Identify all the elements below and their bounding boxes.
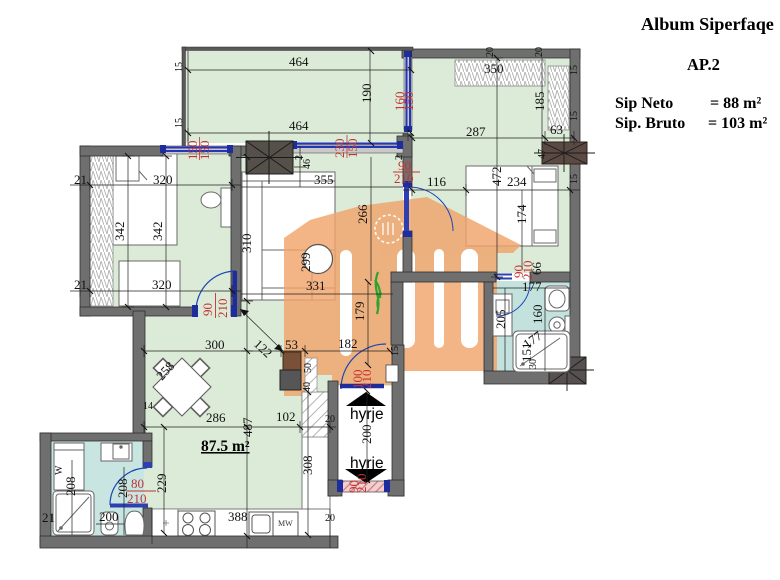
svg-text:210: 210 (359, 370, 374, 390)
svg-text:21: 21 (74, 277, 87, 292)
svg-text:200: 200 (99, 509, 119, 524)
svg-text:53: 53 (285, 337, 298, 352)
svg-text:47: 47 (537, 149, 548, 159)
svg-text:208: 208 (63, 477, 78, 497)
svg-text:15: 15 (569, 65, 580, 75)
svg-text:21: 21 (42, 510, 55, 525)
svg-text:50: 50 (303, 363, 314, 373)
svg-text:210: 210 (394, 171, 414, 186)
svg-text:87.5 m²: 87.5 m² (201, 438, 250, 455)
svg-text:150: 150 (401, 92, 416, 112)
svg-text:15: 15 (390, 346, 401, 356)
svg-text:21: 21 (74, 172, 87, 187)
svg-text:299: 299 (298, 253, 313, 273)
svg-text:308: 308 (300, 456, 315, 476)
svg-text:210: 210 (520, 261, 535, 281)
svg-text:177: 177 (522, 279, 542, 294)
svg-text:205: 205 (493, 310, 508, 330)
svg-text:355: 355 (314, 172, 334, 187)
svg-text:286: 286 (206, 410, 226, 425)
svg-text:102: 102 (276, 409, 296, 424)
svg-text:200: 200 (359, 425, 374, 445)
svg-text:40: 40 (302, 382, 313, 392)
svg-text:310: 310 (239, 234, 254, 254)
svg-text:90: 90 (200, 303, 215, 316)
svg-text:210: 210 (127, 491, 147, 506)
svg-text:160: 160 (530, 305, 545, 325)
svg-text:W: W (54, 465, 65, 475)
svg-text:MW: MW (278, 519, 293, 528)
svg-text:287: 287 (466, 124, 486, 139)
svg-text:464: 464 (289, 118, 309, 133)
svg-text:2: 2 (294, 155, 305, 160)
svg-text:472: 472 (489, 167, 504, 187)
svg-text:210: 210 (354, 474, 369, 494)
svg-text:116: 116 (427, 174, 447, 189)
svg-text:487: 487 (240, 417, 255, 437)
svg-text:350: 350 (484, 61, 504, 76)
svg-text:234: 234 (507, 174, 527, 189)
svg-text:= 103 m²: = 103 m² (708, 115, 767, 132)
svg-text:AP.2: AP.2 (687, 55, 720, 74)
svg-text:20: 20 (534, 47, 545, 57)
svg-text:210: 210 (215, 299, 230, 319)
svg-text:331: 331 (306, 278, 326, 293)
svg-text:320: 320 (152, 277, 172, 292)
svg-text:20: 20 (325, 513, 335, 524)
svg-text:342: 342 (112, 222, 127, 242)
svg-text:Sip Neto: Sip Neto (615, 95, 673, 112)
svg-text:= 88 m²: = 88 m² (710, 95, 761, 112)
svg-text:300: 300 (205, 337, 225, 352)
svg-text:20: 20 (325, 414, 335, 425)
svg-text:30: 30 (528, 359, 539, 369)
svg-text:342: 342 (150, 222, 165, 242)
svg-text:63: 63 (550, 122, 563, 137)
svg-text:Album Siperfaqe: Album Siperfaqe (641, 14, 774, 34)
svg-text:80: 80 (131, 476, 144, 491)
svg-text:190: 190 (359, 84, 374, 104)
svg-text:Sip. Bruto: Sip. Bruto (615, 115, 685, 132)
svg-text:174: 174 (514, 204, 529, 224)
svg-text:20: 20 (485, 47, 496, 57)
svg-text:15: 15 (174, 118, 185, 128)
svg-text:14: 14 (143, 401, 153, 412)
svg-text:182: 182 (338, 336, 358, 351)
svg-text:15: 15 (174, 62, 185, 72)
svg-text:320: 320 (153, 172, 173, 187)
svg-text:179: 179 (352, 302, 367, 322)
svg-text:15: 15 (569, 174, 580, 184)
svg-text:15: 15 (569, 111, 580, 121)
svg-text:464: 464 (289, 54, 309, 69)
svg-text:185: 185 (532, 92, 547, 112)
svg-text:388: 388 (228, 509, 248, 524)
svg-text:229: 229 (154, 474, 169, 494)
svg-text:266: 266 (355, 204, 370, 224)
